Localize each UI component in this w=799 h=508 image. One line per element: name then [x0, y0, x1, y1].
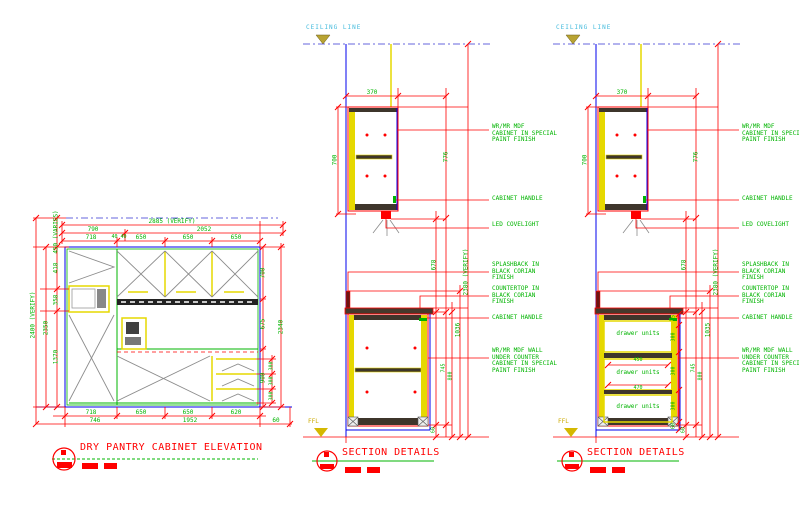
annotation-splashback: SPLASHBACK IN BLACK CORIAN FINISH [492, 262, 587, 282]
dim-right-chain: 700 [260, 268, 267, 279]
dim-drawer-width: 470 [633, 386, 642, 392]
dim-right: 678 [431, 260, 438, 271]
ffl-label: FFL [308, 418, 319, 425]
scale-bar [345, 467, 361, 473]
scale-bar [367, 467, 380, 473]
drawer-unit-label: drawer units [616, 369, 659, 376]
dim-seg-left: 790 [88, 226, 99, 233]
dim-total-width: 2885 (VERIFY) [149, 218, 196, 225]
annotation-led-covelight: LED COVELIGHT [492, 222, 587, 229]
dim-bay: 40 40 [111, 235, 126, 241]
dim-drawer-chain: 60 [671, 423, 677, 429]
annotation-cabinet-handle: CABINET HANDLE [492, 196, 587, 203]
annotation-countertop: COUNTERTOP IN BLACK CORIAN FINISH [742, 286, 799, 306]
elevation-title: DRY PANTRY CABINET ELEVATION [80, 444, 263, 451]
dim-left-chain: 418 [53, 263, 60, 274]
dim-bottom: 746 [90, 417, 101, 424]
ceiling-line-label: CEILING LINE [306, 24, 361, 31]
dim-bottom: 650 [136, 409, 147, 416]
microwave [69, 286, 109, 312]
dim-overall-height: 2400 (VERIFY) [30, 292, 37, 339]
dim-drawer-width: 450 [633, 358, 642, 364]
dim-right: 60 [681, 427, 687, 433]
dim-cabinet-height: 700 [582, 155, 589, 166]
dim-bay: 650 [183, 234, 194, 241]
dim-left-chain: 450 (VARIES) [53, 210, 60, 253]
drawer-unit-label: drawer units [616, 403, 659, 410]
section-right-geometry [553, 35, 740, 443]
dim-bay: 650 [136, 234, 147, 241]
annotation-under-counter-cabinet: WR/MR MDF WALL UNDER COUNTER CABINET IN … [742, 348, 799, 374]
scale-bar [104, 463, 117, 469]
annotation-countertop: COUNTERTOP IN BLACK CORIAN FINISH [492, 286, 587, 306]
dim-right: 1036 [455, 323, 462, 337]
drawer-unit-label: drawer units [616, 330, 659, 337]
dim-right-outer: 2340 [278, 320, 285, 334]
dim-bottom: 718 [86, 409, 97, 416]
dim-bay: 718 [86, 234, 97, 241]
cad-geometry [0, 0, 799, 508]
annotation-under-counter-cabinet: WR/MR MDF WALL UNDER COUNTER CABINET IN … [492, 348, 587, 374]
ffl-label: FFL [558, 418, 569, 425]
section-mid-title: SECTION DETAILS [342, 449, 440, 456]
dim-right: 2380 (VERIFY) [463, 249, 470, 296]
annotation-cabinet-handle: CABINET HANDLE [742, 315, 799, 322]
dim-bottom: 650 [183, 409, 194, 416]
section-mid-geometry [303, 35, 490, 443]
scale-bar [612, 467, 625, 473]
dim-right-chain: 675 [260, 319, 267, 330]
coffee-machine [122, 318, 146, 349]
cad-drawing-canvas: DRY PANTRY CABINET ELEVATION 2885 (VERIF… [0, 0, 799, 508]
dim-right-chain: 900 [260, 373, 267, 384]
dim-right: 800 [448, 371, 454, 380]
dim-drawer: 300 [269, 376, 275, 385]
dim-right: 776 [693, 152, 700, 163]
annotation-wall-cabinet: WR/MR MDF CABINET IN SPECIAL PAINT FINIS… [742, 124, 799, 144]
ceiling-line-label: CEILING LINE [556, 24, 611, 31]
annotation-led-covelight: LED COVELIGHT [742, 222, 799, 229]
annotation-splashback: SPLASHBACK IN BLACK CORIAN FINISH [742, 262, 799, 282]
dim-right: 745 [691, 363, 697, 372]
dim-bottom: 60 [272, 417, 279, 424]
dim-right: 776 [443, 152, 450, 163]
dim-left-chain: 358 [53, 295, 60, 306]
dim-cabinet-depth: 370 [617, 89, 628, 96]
dim-right: 678 [681, 260, 688, 271]
cabinet-outline [65, 247, 260, 407]
dim-drawer: 300 [269, 361, 275, 370]
dim-bay: 650 [231, 234, 242, 241]
dim-cabinet-height: 700 [332, 155, 339, 166]
dim-right: 1035 [705, 323, 712, 337]
dim-drawer-chain: 300 [671, 332, 677, 341]
annotation-cabinet-handle: CABINET HANDLE [742, 196, 799, 203]
section-right-title: SECTION DETAILS [587, 449, 685, 456]
dim-drawer: 300 [269, 391, 275, 400]
dim-drawer-chain: 75 [671, 315, 677, 321]
scale-bar [590, 467, 606, 473]
dim-right: 800 [698, 371, 704, 380]
dim-cabinet-depth: 370 [367, 89, 378, 96]
under-counter-shelf [355, 368, 421, 372]
dim-drawer-chain: 300 [671, 366, 677, 375]
dim-seg-right: 2052 [197, 226, 211, 233]
scale-bar [82, 463, 98, 469]
dim-right: 60 [431, 427, 437, 433]
elevation-view-geometry [33, 215, 293, 427]
dim-bottom: 620 [231, 409, 242, 416]
dim-left-chain: 1370 [53, 350, 60, 364]
dim-inner-height: 2350 [43, 321, 50, 335]
dim-right: 2380 (VERIFY) [713, 249, 720, 296]
dim-right: 745 [441, 363, 447, 372]
annotation-cabinet-handle: CABINET HANDLE [492, 315, 587, 322]
annotation-wall-cabinet: WR/MR MDF CABINET IN SPECIAL PAINT FINIS… [492, 124, 587, 144]
dim-drawer-chain: 300 [671, 401, 677, 410]
dim-bottom: 1952 [183, 417, 197, 424]
